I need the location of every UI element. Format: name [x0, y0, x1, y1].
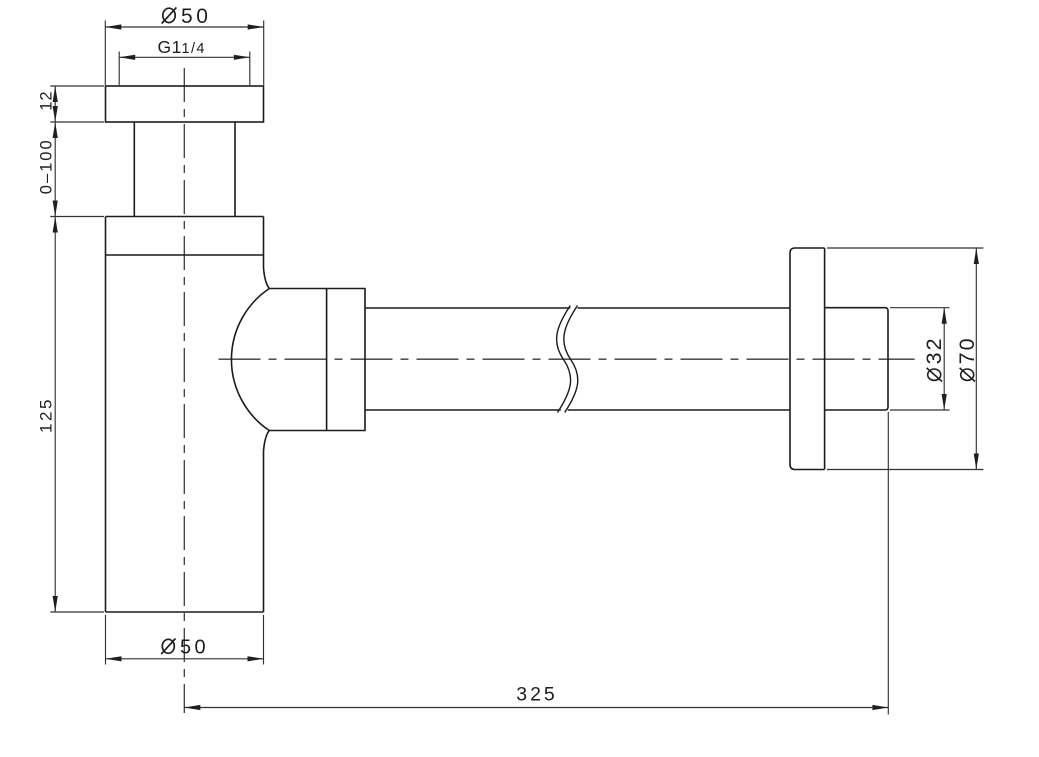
svg-text:50: 50 — [181, 5, 212, 28]
svg-text:125: 125 — [37, 397, 56, 433]
svg-text:32: 32 — [922, 336, 946, 364]
svg-text:70: 70 — [955, 336, 979, 364]
svg-text:1/4: 1/4 — [182, 41, 206, 57]
svg-text:325: 325 — [516, 684, 558, 706]
svg-text:50: 50 — [180, 636, 209, 658]
svg-text:12: 12 — [38, 90, 56, 110]
svg-text:0–100: 0–100 — [38, 138, 56, 194]
svg-text:G1: G1 — [158, 37, 182, 57]
